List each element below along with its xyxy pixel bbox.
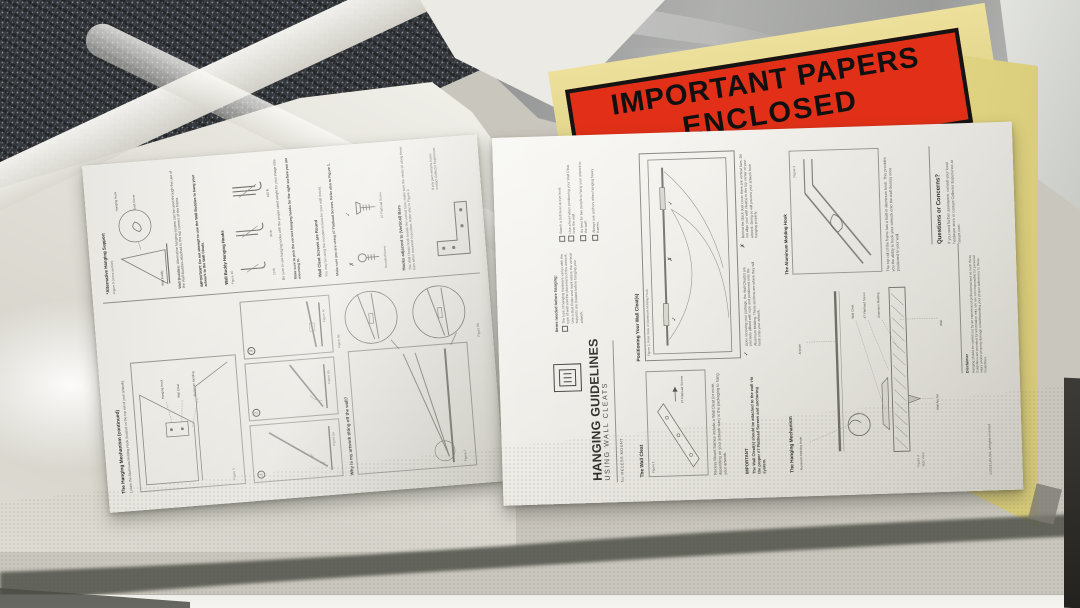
figure-caption: Figure 8b: [476, 323, 481, 337]
section-note: Make sure you are using #7 Flathead Scre…: [326, 152, 340, 276]
figure3-box: Figure 3: [789, 148, 883, 275]
section-body: Be sure to use hanging hooks with the pr…: [272, 156, 286, 280]
step-box: 2 Figure 6b: [244, 356, 338, 421]
section-header: The Aluminum Molding Hook: [783, 214, 790, 275]
figure8-callouts: [341, 277, 476, 353]
checklist-item: The type of hanging hardware varies with…: [560, 249, 584, 324]
check-icon: ✓: [345, 212, 352, 218]
weight-label: 10 lb: [273, 268, 277, 275]
diagram-label: Artwork: [799, 344, 803, 355]
step-box: 3 Figure 6c: [239, 295, 333, 360]
screw-label: #7 Flathead Screw: [378, 174, 385, 218]
section-header: Positioning Your Wall Cleat(s): [635, 294, 642, 362]
cross-icon: ✗: [739, 243, 746, 248]
cross-icon: ✗: [349, 261, 356, 267]
figure-caption: Figure 10: [230, 271, 235, 285]
photo-scene: IMPORTANT PAPERS ENCLOSED The Hanging Me…: [0, 0, 1080, 608]
disclaimer-body: Hanging should be carried out by an expe…: [968, 247, 988, 373]
questions-body: If you need further assistance, consult …: [945, 147, 963, 243]
section-body: The top rail of the frame has a built-in…: [883, 151, 902, 271]
checklist-item: It's best for two people to hang your ar…: [577, 159, 588, 233]
figure2-box: Figure 2, Rear View of Aluminum Molding …: [639, 150, 741, 361]
checklist-item: Use a level when positioning your Wall C…: [566, 159, 577, 233]
section-header: Wall Buddy Hanging Hooks: [220, 230, 229, 285]
check-icon: ✓: [671, 316, 678, 321]
dark-gap-right-edge: [1064, 378, 1080, 608]
figure-note: Upon receiving your package, the Wall Cl…: [742, 258, 762, 347]
figure-caption: Figure 8a: [336, 334, 341, 348]
checklist-item: Attach a bolt level at eye level.: [558, 186, 565, 233]
check-icon: ✓: [667, 200, 674, 205]
checklist-item: Always use anchors when hanging heavy fr…: [589, 159, 600, 233]
diagram-label: Wall: [940, 320, 944, 326]
diagram-label: Hanging Hook: [113, 171, 120, 211]
disclaimer-header: Disclaimer: [965, 354, 970, 373]
corner-plate-icon: [430, 193, 475, 260]
cross-icon: ✗: [667, 256, 674, 261]
footer-rule: [928, 146, 932, 244]
check-icon: ✓: [743, 351, 750, 356]
figure-note: Behind the black dust cover there are ve…: [739, 152, 759, 239]
checklist: Items needed before hanging: The type of…: [549, 155, 607, 333]
section-header: *Alternative Hanging Support: [100, 233, 110, 294]
surface-shadow: [0, 480, 1080, 608]
section-body: If any part remains loose, contact Colle…: [427, 142, 439, 191]
checkbox-icon: [568, 235, 574, 241]
screw-label: Rounded Screw: [382, 228, 389, 268]
section-note: Make sure to pick the correct hanging ho…: [284, 155, 303, 279]
figure5-box: Hanging Hook Wall Cleat Aluminum Molding…: [130, 354, 246, 492]
weight-label: 100 lb: [266, 189, 270, 198]
diagram-label: Dust Cover: [131, 180, 137, 210]
weight-label: 30 lb: [270, 230, 274, 237]
figure-caption: Figure 3: [792, 166, 796, 178]
checkbox-icon: [580, 235, 586, 241]
checkbox-icon: [592, 235, 598, 241]
checkbox-icon: [562, 326, 568, 332]
brand-logo: [553, 363, 582, 392]
important-note: IMPORTANT: Do not attempt to use the Wal…: [190, 163, 209, 287]
questions-header: Questions or Concerns?: [935, 174, 943, 244]
hanging-hooks-icons: [228, 158, 272, 280]
checkbox-icon: [559, 236, 565, 242]
